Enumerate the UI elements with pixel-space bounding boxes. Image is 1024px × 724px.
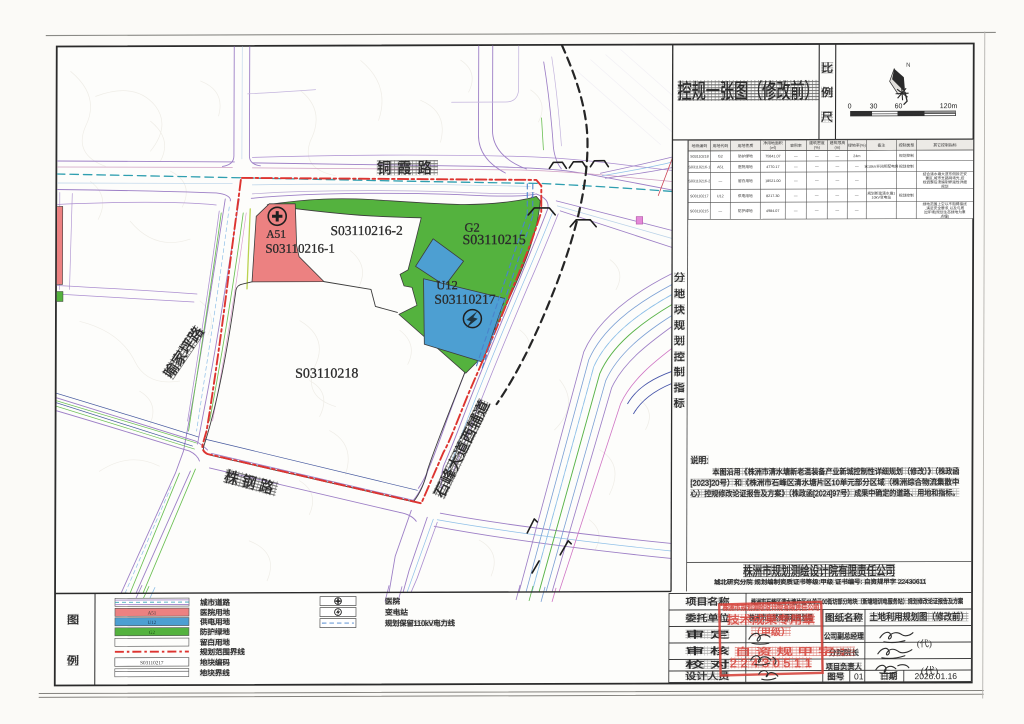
svg-text:—: —	[794, 154, 798, 158]
svg-text:(%): (%)	[814, 145, 821, 150]
svg-text:城市道路: 城市道路	[200, 597, 231, 607]
svg-text:地块编码: 地块编码	[692, 143, 708, 148]
svg-text:60: 60	[895, 103, 903, 110]
svg-text:—: —	[855, 194, 859, 198]
svg-text:比: 比	[821, 62, 833, 75]
svg-text:S03110216-2: S03110216-2	[331, 223, 403, 238]
svg-text:S03110215: S03110215	[690, 209, 709, 213]
svg-text:(代): (代)	[917, 639, 932, 649]
svg-text:例: 例	[67, 653, 79, 667]
svg-text:技术成果专用章: 技术成果专用章	[727, 613, 815, 627]
svg-text:留白用地: 留白用地	[200, 637, 231, 647]
svg-text:规划控制: 规划控制	[899, 164, 914, 169]
svg-text:—: —	[794, 179, 798, 183]
svg-text:—: —	[794, 209, 798, 213]
svg-text:U12: U12	[436, 278, 458, 292]
svg-text:U12: U12	[148, 621, 157, 626]
svg-text:图: 图	[67, 613, 79, 626]
svg-text:—: —	[815, 194, 819, 198]
svg-text:8217.30: 8217.30	[766, 194, 779, 198]
svg-text:留白用地: 留白用地	[738, 178, 753, 183]
svg-text:规划保留110kV电力线: 规划保留110kV电力线	[385, 618, 455, 628]
svg-text:规划控制: 规划控制	[899, 153, 914, 158]
svg-text:项目负责人: 项目负责人	[826, 661, 862, 671]
svg-text:4770.17: 4770.17	[766, 165, 779, 169]
svg-text:绿地率(%): 绿地率(%)	[848, 143, 866, 148]
svg-text:图号: 图号	[827, 671, 844, 681]
svg-text:—: —	[794, 165, 798, 169]
svg-text:审 核: 审 核	[685, 645, 730, 657]
svg-text:18521.00: 18521.00	[765, 179, 780, 183]
svg-text:—: —	[718, 179, 722, 183]
svg-text:控规一张图（修改前）: 控规一张图（修改前）	[678, 80, 819, 103]
svg-text:—: —	[855, 209, 859, 213]
svg-text:图纸名称: 图纸名称	[825, 612, 864, 624]
svg-text:N: N	[906, 63, 910, 69]
svg-text:S03110217: S03110217	[434, 292, 495, 307]
svg-text:尺: 尺	[821, 112, 834, 124]
svg-text:块: 块	[674, 304, 686, 316]
svg-text:—: —	[815, 179, 819, 183]
svg-text:分: 分	[674, 272, 686, 284]
svg-text:(㎡): (㎡)	[770, 145, 777, 150]
svg-text:S03110217: S03110217	[140, 660, 164, 666]
svg-text:—: —	[815, 209, 819, 213]
svg-text:S03110216-1: S03110216-1	[688, 165, 710, 169]
svg-text:S03110216-1: S03110216-1	[265, 241, 335, 256]
svg-text:S03110216-2: S03110216-2	[688, 179, 710, 183]
svg-text:备注: 备注	[878, 143, 886, 148]
svg-text:标: 标	[674, 398, 686, 410]
svg-text:容积率: 容积率	[790, 143, 802, 148]
svg-text:S03110218: S03110218	[295, 367, 358, 382]
svg-text:本图沿用《株洲市清水塘新老混装备产业新城控制性详细规划（修改: 本图沿用《株洲市清水塘新老混装备产业新城控制性详细规划（修改）》（株政函	[712, 466, 959, 477]
svg-text:供电用地: 供电用地	[738, 193, 753, 198]
svg-text:—: —	[815, 165, 819, 169]
svg-text:公司副总经理: 公司副总经理	[824, 631, 864, 641]
svg-text:10kV变电站: 10kV变电站	[872, 195, 892, 200]
svg-text:A51: A51	[717, 165, 724, 169]
svg-text:用地代码: 用地代码	[713, 143, 729, 148]
svg-text:控: 控	[674, 350, 686, 363]
svg-text:75841.07: 75841.07	[765, 154, 780, 158]
svg-text:(m): (m)	[835, 145, 842, 150]
svg-text:防护绿地: 防护绿地	[738, 208, 753, 213]
svg-text:防护绿地: 防护绿地	[200, 626, 231, 636]
svg-text:说明:: 说明:	[690, 454, 708, 465]
svg-text:—: —	[835, 179, 839, 183]
svg-text:例: 例	[821, 85, 833, 99]
svg-text:医院用地: 医院用地	[200, 607, 231, 617]
svg-text:心）控规修改论证报告及方案》（株政函[2024]97号）成果: 心）控规修改论证报告及方案》（株政函[2024]97号）成果中确定的道路、用地和…	[690, 488, 959, 499]
svg-text:控制类型: 控制类型	[899, 142, 915, 147]
svg-text:24m: 24m	[853, 154, 860, 158]
svg-text:[2023]20号）和《株洲市石峰区清水塘片区10单元部分区: [2023]20号）和《株洲市石峰区清水塘片区10单元部分区域（株洲综合物流集散…	[690, 477, 959, 488]
svg-text:规: 规	[674, 319, 686, 332]
svg-text:30: 30	[870, 103, 878, 110]
svg-text:2 2 4 3 0 5 1 1: 2 2 4 3 0 5 1 1	[730, 656, 812, 670]
svg-text:规划控制: 规划控制	[899, 193, 914, 198]
svg-text:校 对: 校 对	[685, 659, 730, 671]
svg-text:地块编码: 地块编码	[200, 657, 231, 667]
svg-text:A51: A51	[148, 611, 157, 616]
svg-text:指: 指	[674, 381, 686, 394]
svg-text:规划: 规划	[941, 184, 949, 189]
svg-text:—: —	[855, 165, 859, 169]
svg-text:制: 制	[674, 365, 685, 378]
svg-text:—: —	[836, 165, 840, 169]
svg-text:—: —	[794, 194, 798, 198]
svg-text:U12: U12	[717, 194, 724, 198]
svg-text:铜霞路: 铜霞路	[377, 159, 438, 177]
svg-text:—: —	[718, 209, 722, 213]
svg-text:用地性质: 用地性质	[738, 143, 754, 148]
svg-text:其它控制指标: 其它控制指标	[933, 142, 956, 147]
svg-text:防护绿地: 防护绿地	[738, 153, 753, 158]
svg-text:规划范围界线: 规划范围界线	[200, 646, 246, 656]
svg-text:—: —	[835, 194, 839, 198]
svg-text:—: —	[815, 154, 819, 158]
svg-text:—: —	[836, 154, 840, 158]
svg-text:审 定: 审 定	[685, 629, 730, 641]
svg-text:G2: G2	[149, 631, 156, 636]
svg-text:供电用地: 供电用地	[200, 616, 231, 626]
svg-text:01: 01	[854, 671, 864, 681]
svg-text:点缓): 点缓)	[940, 214, 949, 219]
svg-text:—: —	[835, 209, 839, 213]
svg-text:医院: 医院	[385, 596, 401, 606]
svg-text:120m: 120m	[940, 103, 958, 110]
svg-text:变电站: 变电站	[385, 607, 409, 617]
svg-text:地块界线: 地块界线	[200, 667, 231, 677]
svg-text:(代): (代)	[921, 666, 939, 678]
svg-text:株洲市规划测绘设计院有限责任公司: 株洲市规划测绘设计院有限责任公司	[743, 562, 895, 578]
svg-text:含10kV开闭所配电房: 含10kV开闭所配电房	[864, 164, 899, 169]
svg-text:0: 0	[848, 103, 852, 110]
svg-text:株洲市规划测绘设计院有限责任公司: 株洲市规划测绘设计院有限责任公司	[722, 603, 819, 612]
svg-text:S03110218: S03110218	[690, 155, 709, 159]
svg-text:—: —	[855, 179, 859, 183]
svg-text:（甲级）: （甲级）	[751, 626, 791, 638]
svg-text:划: 划	[674, 334, 685, 347]
svg-text:委托单位: 委托单位	[685, 612, 730, 624]
svg-text:4984.07: 4984.07	[766, 209, 779, 213]
svg-text:A51: A51	[266, 229, 286, 241]
svg-text:S03110217: S03110217	[690, 194, 709, 198]
svg-text:地: 地	[674, 287, 686, 300]
svg-text:G2: G2	[718, 155, 723, 159]
svg-text:医院用地: 医院用地	[738, 164, 753, 169]
svg-text:S03110215: S03110215	[462, 233, 525, 248]
svg-text:土地利用规划图（修改前）: 土地利用规划图（修改前）	[869, 610, 968, 623]
